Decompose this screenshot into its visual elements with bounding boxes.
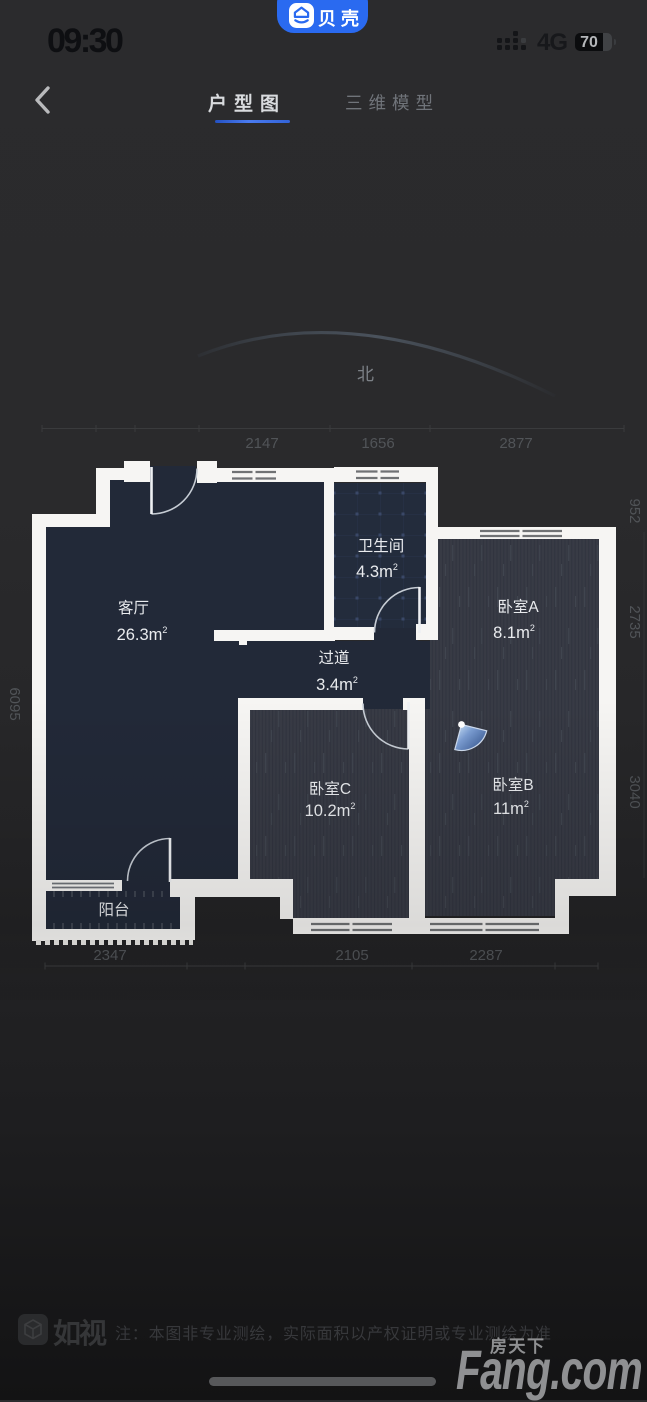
svg-text:2735: 2735	[626, 605, 643, 638]
svg-text:2147: 2147	[245, 435, 278, 452]
svg-text:北: 北	[357, 365, 374, 384]
svg-text:客厅: 客厅	[118, 599, 149, 617]
svg-text:8.1m2: 8.1m2	[493, 623, 535, 642]
svg-text:952: 952	[626, 498, 643, 523]
svg-text:2877: 2877	[499, 435, 532, 452]
svg-text:26.3m2: 26.3m2	[117, 625, 168, 644]
svg-text:4.3m2: 4.3m2	[356, 562, 398, 581]
svg-text:过道: 过道	[318, 649, 349, 667]
svg-text:3.4m2: 3.4m2	[316, 675, 358, 694]
svg-text:1656: 1656	[361, 435, 394, 452]
svg-text:卫生间: 卫生间	[358, 537, 405, 555]
svg-text:卧室A: 卧室A	[497, 598, 539, 616]
